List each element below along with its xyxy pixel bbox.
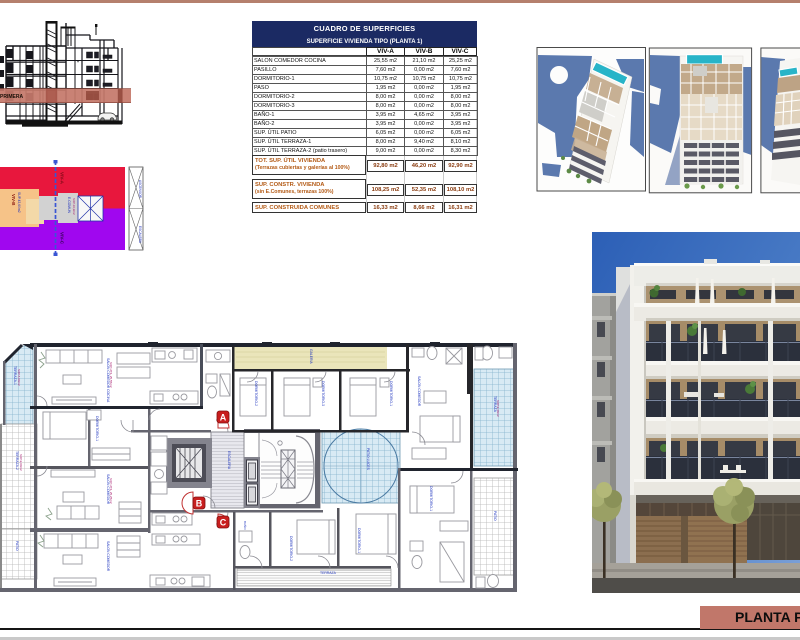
svg-text:SUP.16,9m2: SUP.16,9m2 [72, 198, 76, 215]
svg-text:TERRAZA-1: TERRAZA-1 [13, 366, 17, 385]
svg-text:DORMITORIO-2: DORMITORIO-2 [254, 381, 258, 406]
svg-text:ASCENSOR: ASCENSOR [138, 180, 142, 199]
svg-text:GALERIA: GALERIA [309, 349, 313, 364]
svg-text:DORMITORIO-1: DORMITORIO-1 [357, 528, 361, 553]
svg-text:VIV-B: VIV-B [11, 194, 16, 205]
svg-text:SUP.9,00m2: SUP.9,00m2 [19, 454, 23, 471]
svg-text:PRIMERA: PRIMERA [0, 94, 23, 100]
svg-text:BAÑO: BAÑO [243, 521, 248, 530]
svg-text:C: C [220, 518, 227, 528]
svg-text:DORMITORIO-1: DORMITORIO-1 [95, 416, 99, 441]
svg-text:TERRAZA-2: TERRAZA-2 [15, 451, 19, 470]
svg-text:VIV-C: VIV-C [60, 232, 65, 245]
svg-text:SUP.43,60m2: SUP.43,60m2 [17, 192, 21, 213]
svg-text:DORMITORIO-1: DORMITORIO-1 [389, 381, 393, 406]
svg-text:DORMITORIO-3: DORMITORIO-3 [321, 381, 325, 406]
svg-text:ESCALERA: ESCALERA [138, 226, 142, 244]
svg-text:SUP.8,00m2: SUP.8,00m2 [17, 369, 21, 386]
svg-text:SUP.UTIL 25,25m2: SUP.UTIL 25,25m2 [109, 478, 113, 504]
svg-text:ESCALERA: ESCALERA [227, 451, 231, 470]
svg-text:SALON COMEDOR: SALON COMEDOR [106, 541, 110, 572]
svg-text:SUP.UTIL 25,55m2: SUP.UTIL 25,55m2 [109, 362, 113, 388]
svg-text:PATIO: PATIO [15, 541, 19, 551]
svg-text:SALON COMEDOR: SALON COMEDOR [417, 376, 421, 407]
svg-text:B: B [196, 499, 203, 509]
svg-text:A: A [220, 413, 227, 423]
svg-text:PATIO: PATIO [493, 511, 497, 521]
svg-text:SUP.9,40m2: SUP.9,40m2 [496, 400, 500, 417]
svg-text:E.COMUN: E.COMUN [67, 197, 71, 214]
svg-text:DORMITORIO-2: DORMITORIO-2 [289, 536, 293, 561]
svg-text:TERRAZA: TERRAZA [320, 571, 337, 575]
svg-text:DORMITORIO-1: DORMITORIO-1 [429, 486, 433, 511]
svg-text:VIV-A: VIV-A [60, 172, 65, 185]
svg-text:PATIO LUCES: PATIO LUCES [366, 448, 370, 471]
